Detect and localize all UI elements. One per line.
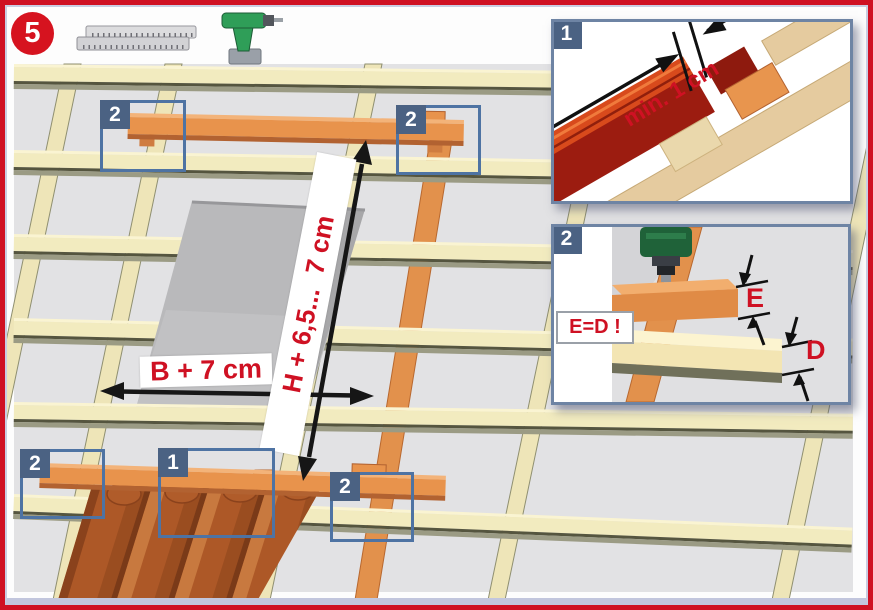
callout-number-tag: 2 — [330, 472, 360, 501]
inset-number-tag: 2 — [551, 224, 582, 254]
inset-number-tag: 1 — [551, 19, 582, 49]
callout-number-tag: 2 — [20, 449, 50, 478]
width-dimension-label: B + 7 cm — [140, 353, 273, 387]
callout-box-head-batten-right: 2 — [396, 105, 481, 175]
callout-box-tiles: 1 — [158, 448, 275, 538]
folding-ruler-icon — [77, 26, 196, 50]
callout-box-foot-batten-left: 2 — [20, 449, 105, 519]
step-number: 5 — [24, 17, 40, 50]
equality-note: E=D ! — [556, 311, 634, 344]
callout-number-tag: 2 — [396, 105, 426, 134]
inset-1-illustration — [554, 22, 850, 201]
detail-inset-1: min. 1 cm 1 — [551, 19, 853, 204]
callout-number-tag: 2 — [100, 100, 130, 129]
callout-box-foot-batten-right: 2 — [330, 472, 414, 542]
callout-box-head-batten-left: 2 — [100, 100, 186, 172]
cordless-drill-icon — [222, 13, 283, 64]
dimension-d-label: D — [806, 335, 826, 366]
callout-number-tag: 1 — [158, 448, 188, 477]
detail-inset-2: E=D ! E D 2 — [551, 224, 851, 405]
dimension-e-label: E — [746, 283, 764, 314]
step-number-badge: 5 — [11, 12, 54, 55]
